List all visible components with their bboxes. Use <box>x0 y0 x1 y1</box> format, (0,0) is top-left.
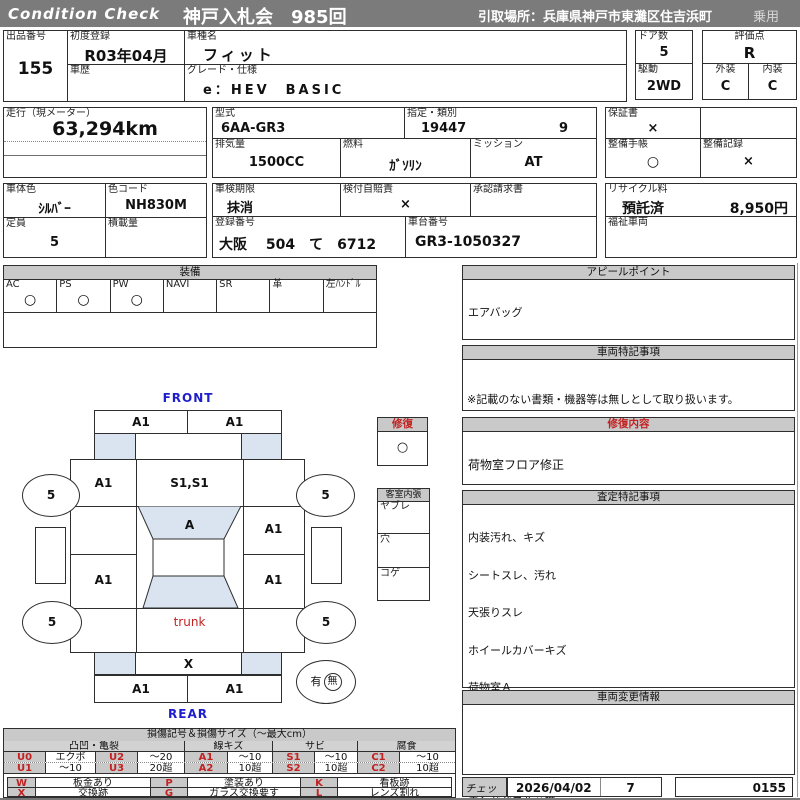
check-inspector: 7 <box>600 781 661 795</box>
legend-code: U0 <box>4 752 46 762</box>
legend-value: 板金あり <box>36 778 151 787</box>
sheet-number-box: 0155 <box>675 777 793 797</box>
field-body-color: 車体色 ｼﾙﾊﾞｰ <box>4 184 106 218</box>
field-doors: ドア数 5 <box>636 31 692 64</box>
mark: A1 <box>226 682 244 696</box>
front-corner-left <box>95 434 136 459</box>
repair-mark-box: 修復 ○ <box>377 417 428 466</box>
mark-right-rear-door: A1 <box>243 573 304 587</box>
legend-group: 凸凹・亀裂 <box>4 741 185 751</box>
equipment-columns: AC ○ PS ○ PW ○ NAVI SR 革 <box>4 279 376 313</box>
legend-code: A1 <box>185 752 228 762</box>
field-rating: 評価点 R <box>703 31 796 64</box>
field-warranty: 保証書 × <box>606 108 701 139</box>
legend-code: W <box>8 778 36 787</box>
legend-code: S1 <box>273 752 315 762</box>
field-first-registration: 初度登録 R03年04月 <box>68 31 185 65</box>
repair-details-items: 荷物室フロア修正 <box>468 434 564 497</box>
registration-box: 車検期限 抹消 検付自賠責 × 承認請求書 登録番号 大阪 504 て 6712… <box>212 183 597 258</box>
divider <box>4 155 206 156</box>
auction-title: 神戸入札会 985回 <box>183 3 347 29</box>
appeal-item: エアバッグ <box>468 307 556 320</box>
field-transmission: ミッション AT <box>471 139 596 177</box>
mark-rear-panel: X <box>136 657 241 671</box>
legend-value: エクボ <box>46 752 96 762</box>
mileage-value: 63,294km <box>4 118 206 140</box>
field-welfare-vehicle: 福祉車両 <box>606 217 796 257</box>
spare-tire-indicator: 有無 <box>296 660 356 704</box>
body-line <box>71 554 136 555</box>
rear-corner-right <box>241 653 281 674</box>
cabin-row-burn: コゲ <box>378 568 429 600</box>
doors-drive-box: ドア数 5 駆動 2WD <box>635 30 693 100</box>
legend-value: 〜20 <box>138 752 185 762</box>
equipment-title: 装備 <box>4 266 376 280</box>
body-line <box>71 608 304 609</box>
field-exhibit-number: 出品番号 155 <box>4 31 68 101</box>
field-insurance: 検付自賠責 × <box>341 184 471 217</box>
car-body: A1 S1,S1 A A1 A1 A1 trunk <box>70 459 305 653</box>
wheel-mark: 5 <box>47 488 55 502</box>
legend-value: 塗装あり <box>188 778 301 787</box>
field-exterior-grade: 外装 C <box>703 64 749 99</box>
assessment-item: シートスレ、汚れ <box>468 570 568 583</box>
field-load: 積載量 <box>106 218 206 257</box>
equipment-col-navi: NAVI <box>164 279 217 312</box>
legend-code: C2 <box>358 763 400 773</box>
rear-corner-left <box>95 653 136 674</box>
legend-value: 10超 <box>315 763 358 773</box>
field-chassis-number: 車台番号 GR3-1050327 <box>406 217 596 257</box>
appeal-panel: アピールポイント エアバッグ ABS プッシュスタート ETC <box>462 265 795 340</box>
field-registration-number: 登録番号 大阪 504 て 6712 <box>213 217 406 257</box>
field-docs-empty <box>701 108 796 139</box>
field-maintenance-book: 整備手帳 ○ <box>606 139 701 177</box>
field-capacity: 定員 5 <box>4 218 106 257</box>
field-interior-grade: 内装 C <box>749 64 796 99</box>
vehicle-notes-note: ※記載のない書類・機器等は無しとして取り扱います。 <box>467 391 739 407</box>
legend-value: 10超 <box>228 763 273 773</box>
repair-mark: ○ <box>378 440 427 455</box>
mark-windshield: S1,S1 <box>136 476 243 490</box>
legend-value: 看板跡 <box>338 778 451 787</box>
auction-condition-sheet: Condition Check 神戸入札会 985回 引取場所：兵庫県神戸市東灘… <box>0 0 800 800</box>
equipment-col-ac: AC ○ <box>4 279 57 312</box>
equipment-col-sr: SR <box>217 279 270 312</box>
equipment-col-leather: 革 <box>270 279 323 312</box>
cabin-row-tear: ヤブレ <box>378 501 429 534</box>
legend-code: A2 <box>185 763 228 773</box>
equipment-col-pw: PW ○ <box>111 279 164 312</box>
recycle-box: リサイクル料 預託済 8,950円 福祉車両 <box>605 183 797 258</box>
mark: A1 <box>226 415 244 429</box>
mark: A1 <box>132 415 150 429</box>
legend-row-3: W 板金あり P 塗装あり K 看板跡 <box>7 777 452 787</box>
wheel-left-front: 5 <box>22 474 80 517</box>
rear-bumper: A1 A1 <box>94 675 282 703</box>
sheet-number: 0155 <box>753 781 786 795</box>
wheel-right-rear: 5 <box>296 601 356 644</box>
mark: A1 <box>132 682 150 696</box>
equipment-col-lhd: 左ﾊﾝﾄﾞﾙ <box>324 279 376 312</box>
rear-strip: X <box>94 652 282 675</box>
wheel-mark: 5 <box>321 488 329 502</box>
change-info-panel: 車両変更情報 <box>462 690 795 775</box>
legend-group: 線キズ <box>185 741 273 751</box>
legend-value: 10超 <box>400 763 455 773</box>
field-drive: 駆動 2WD <box>636 64 692 99</box>
front-corner-right <box>241 434 281 459</box>
spare-yes-label: 有 <box>311 675 322 688</box>
repair-details-panel: 修復内容 荷物室フロア修正 <box>462 417 795 485</box>
rear-bumper-left-cell: A1 <box>95 676 188 702</box>
check-date-box: 2026/04/02 7 <box>507 777 662 797</box>
mark-roof: A <box>136 518 243 532</box>
legend-code: U3 <box>96 763 138 773</box>
field-inspection-expiry: 車検期限 抹消 <box>213 184 341 217</box>
assessment-title: 査定特記事項 <box>463 491 794 505</box>
legend-code: U2 <box>96 752 138 762</box>
body-line <box>243 554 304 555</box>
diagram-front-label: FRONT <box>94 391 282 405</box>
legend-code: C1 <box>358 752 400 762</box>
wheel-left-rear: 5 <box>22 601 82 644</box>
front-bumper-right-cell: A1 <box>188 411 281 433</box>
front-bumper-left-cell: A1 <box>95 411 188 433</box>
field-fuel: 燃料 ｶﾞｿﾘﾝ <box>341 139 471 177</box>
vehicle-notes-panel: 車両特記事項 ※記載のない書類・機器等は無しとして取り扱います。 <box>462 345 795 411</box>
legend-code: S2 <box>273 763 315 773</box>
repair-mark-title: 修復 <box>378 418 427 432</box>
legend-code: U1 <box>4 763 46 773</box>
legend-group: 腐食 <box>358 741 455 751</box>
legend-code: P <box>151 778 188 787</box>
assessment-item: ホイールカバーキズ <box>468 645 568 658</box>
legend-value: 交換跡 <box>36 788 151 796</box>
docs-box: 保証書 × 整備手帳 ○ 整備記録 × <box>605 107 797 178</box>
mark-right-front-door: A1 <box>243 522 304 536</box>
legend-groups: 凸凹・亀裂 線キズ サビ 腐食 <box>4 741 455 752</box>
field-vehicle-history: 車歴 <box>68 65 185 101</box>
legend-value: 〜10 <box>228 752 273 762</box>
legend-value: 〜10 <box>46 763 96 773</box>
rear-bumper-right-cell: A1 <box>188 676 281 702</box>
identity-box: 出品番号 155 初度登録 R03年04月 車歴 車種名 フィット グレード・仕… <box>3 30 627 102</box>
legend-code: G <box>151 788 188 796</box>
color-box: 車体色 ｼﾙﾊﾞｰ 色コード NH830M 定員 5 積載量 <box>3 183 207 258</box>
spare-no-label: 無 <box>324 673 342 691</box>
cabin-row-hole: 穴 <box>378 534 429 568</box>
cabin-lining-box: 客室内張 ヤブレ 穴 コゲ <box>377 488 430 601</box>
legend-value: 〜10 <box>315 752 358 762</box>
hood-strip <box>94 433 282 460</box>
field-class-number: 指定・類別 19447 9 <box>405 108 596 139</box>
top-bar: Condition Check 神戸入札会 985回 引取場所：兵庫県神戸市東灘… <box>0 0 800 27</box>
wheel-mark: 5 <box>322 615 330 629</box>
legend-code: L <box>301 788 338 796</box>
change-info-title: 車両変更情報 <box>463 691 794 705</box>
field-model-name: 車種名 フィット <box>185 31 626 65</box>
body-line <box>243 460 244 652</box>
equipment-table: 装備 AC ○ PS ○ PW ○ NAVI SR 革 <box>3 265 377 348</box>
left-mirror <box>35 527 66 584</box>
wheel-mark: 5 <box>48 615 56 629</box>
legend-row-1: U0 エクボ U2 〜20 A1 〜10 S1 〜10 C1 〜10 <box>4 752 455 763</box>
repair-details-item: 荷物室フロア修正 <box>468 459 564 472</box>
field-recycle-fee: リサイクル料 預託済 8,950円 <box>606 184 796 217</box>
field-grade: グレード・仕様 e：HEV BASIC <box>185 65 626 101</box>
vehicle-notes-title: 車両特記事項 <box>463 346 794 360</box>
field-displacement: 排気量 1500CC <box>213 139 341 177</box>
page-right-line <box>797 263 798 797</box>
assessment-item: 天張りスレ <box>468 607 568 620</box>
front-bumper: A1 A1 <box>94 410 282 434</box>
field-approval-request: 承認請求書 <box>471 184 596 217</box>
legend-value: ガラス交換要す <box>188 788 301 796</box>
assessment-item: 内装汚れ、キズ <box>468 532 568 545</box>
legend-row-4: X 交換跡 G ガラス交換要す L レンズ割れ <box>7 787 452 797</box>
wheel-right-front: 5 <box>296 474 355 517</box>
pickup-location: 引取場所：兵庫県神戸市東灘区住吉浜町 <box>478 6 712 25</box>
check-label-cell: チェック <box>462 777 507 797</box>
mark-trunk: trunk <box>136 615 243 629</box>
appeal-title: アピールポイント <box>463 266 794 280</box>
spec-box: 型式 6AA-GR3 指定・類別 19447 9 排気量 1500CC 燃料 ｶ… <box>212 107 597 178</box>
field-color-code: 色コード NH830M <box>106 184 206 218</box>
check-date: 2026/04/02 <box>516 781 592 795</box>
assessment-panel: 査定特記事項 内装汚れ、キズ シートスレ、汚れ 天張りスレ ホイールカバーキズ … <box>462 490 795 688</box>
legend-code: K <box>301 778 338 787</box>
vehicle-class: 乗用 <box>753 6 779 25</box>
brand-logo: Condition Check <box>8 5 160 23</box>
rating-box: 評価点 R 外装 C 内装 C <box>702 30 797 100</box>
legend-value: 20超 <box>138 763 185 773</box>
mileage-box: 走行（現メーター） 63,294km <box>3 107 207 178</box>
divider <box>4 141 206 142</box>
legend-value: 〜10 <box>400 752 455 762</box>
legend-value: レンズ割れ <box>338 788 451 796</box>
field-model-code: 型式 6AA-GR3 <box>213 108 405 139</box>
mark-left-rear-door: A1 <box>71 573 136 587</box>
field-maintenance-record: 整備記録 × <box>701 139 796 177</box>
legend-code: X <box>8 788 36 796</box>
damage-legend: 損傷記号＆損傷サイズ（〜最大cm） 凸凹・亀裂 線キズ サビ 腐食 U0 エクボ… <box>3 728 456 798</box>
repair-details-title: 修復内容 <box>463 418 794 432</box>
equipment-col-ps: PS ○ <box>57 279 110 312</box>
mark-left-front-panel: A1 <box>71 476 136 490</box>
legend-group: サビ <box>273 741 358 751</box>
legend-row-2: U1 〜10 U3 20超 A2 10超 S2 10超 C2 10超 <box>4 763 455 774</box>
right-mirror <box>311 527 342 584</box>
diagram-rear-label: REAR <box>94 707 282 721</box>
